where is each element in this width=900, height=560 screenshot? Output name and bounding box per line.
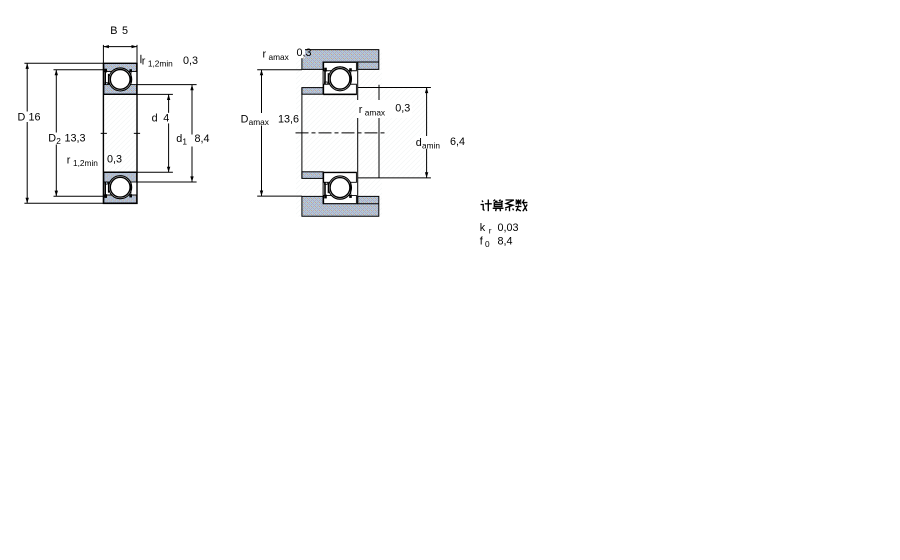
svg-text:1: 1 <box>182 136 187 146</box>
svg-text:r: r <box>489 225 492 235</box>
svg-text:16: 16 <box>29 112 41 124</box>
svg-text:6,4: 6,4 <box>450 136 465 148</box>
svg-text:4: 4 <box>163 113 169 125</box>
svg-text:r: r <box>67 154 71 166</box>
svg-text:1,2min: 1,2min <box>73 158 98 168</box>
svg-text:0,3: 0,3 <box>107 153 122 165</box>
svg-text:8,4: 8,4 <box>498 236 513 248</box>
svg-text:8,4: 8,4 <box>195 133 210 145</box>
svg-text:d: d <box>152 113 158 125</box>
svg-text:0,3: 0,3 <box>297 47 312 59</box>
svg-text:13,6: 13,6 <box>278 114 299 126</box>
svg-text:0,03: 0,03 <box>498 222 519 234</box>
svg-text:r: r <box>359 104 363 116</box>
svg-text:r: r <box>142 55 146 67</box>
svg-text:amax: amax <box>365 107 386 117</box>
svg-text:amax: amax <box>249 117 270 127</box>
svg-text:0: 0 <box>485 239 490 249</box>
svg-text:k: k <box>480 222 486 234</box>
svg-text:d: d <box>416 137 422 149</box>
svg-text:0,3: 0,3 <box>183 55 198 67</box>
svg-text:1,2min: 1,2min <box>148 59 173 69</box>
svg-text:r: r <box>263 49 267 61</box>
svg-text:13,3: 13,3 <box>65 132 86 144</box>
svg-text:B: B <box>110 25 117 37</box>
svg-text:d: d <box>176 133 182 145</box>
svg-text:D: D <box>18 112 26 124</box>
svg-text:amin: amin <box>422 140 440 150</box>
svg-text:D: D <box>48 132 56 144</box>
svg-text:5: 5 <box>122 25 128 37</box>
svg-text:D: D <box>241 114 249 126</box>
svg-text:amax: amax <box>269 52 290 62</box>
svg-text:2: 2 <box>56 136 61 146</box>
svg-text:0,3: 0,3 <box>395 103 410 115</box>
